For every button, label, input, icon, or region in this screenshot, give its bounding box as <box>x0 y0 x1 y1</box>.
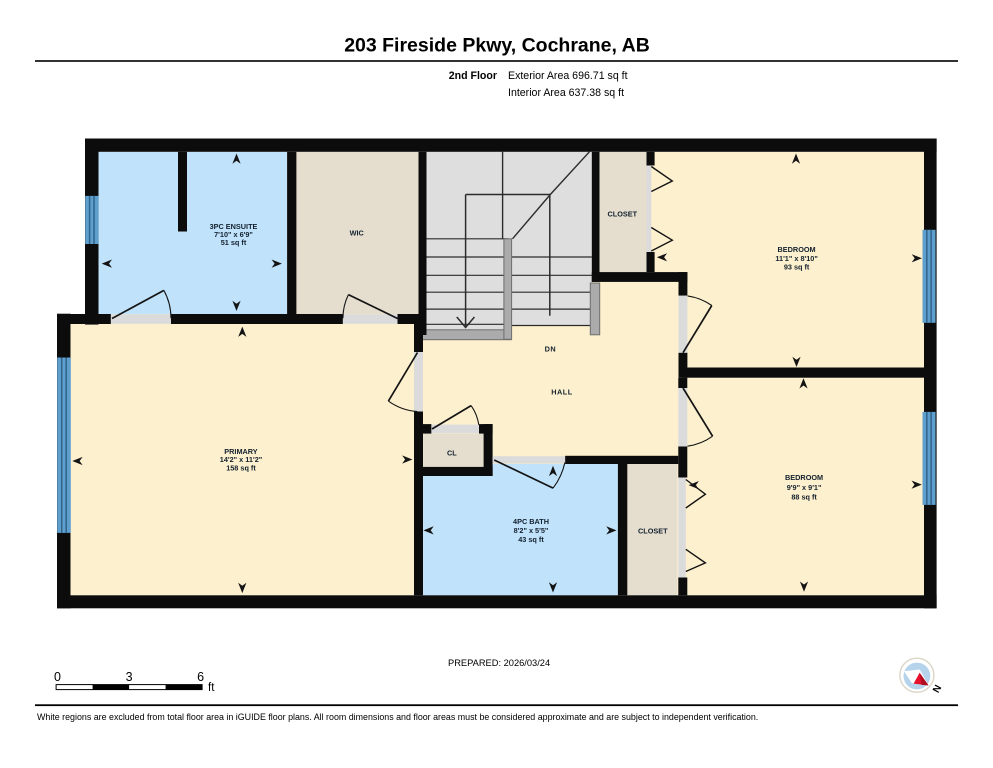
svg-text:0: 0 <box>54 670 61 684</box>
svg-text:Exterior Area 696.71 sq ft: Exterior Area 696.71 sq ft <box>508 70 628 82</box>
svg-text:2nd Floor: 2nd Floor <box>449 70 497 82</box>
svg-text:203 Fireside Pkwy, Cochrane, A: 203 Fireside Pkwy, Cochrane, AB <box>344 35 650 57</box>
svg-text:9'9" x 9'1": 9'9" x 9'1" <box>787 483 822 492</box>
svg-text:ft: ft <box>208 682 215 694</box>
svg-text:51 sq ft: 51 sq ft <box>221 238 247 247</box>
svg-text:93 sq ft: 93 sq ft <box>784 263 810 272</box>
svg-text:BEDROOM: BEDROOM <box>778 245 816 254</box>
svg-text:HALL: HALL <box>551 388 572 397</box>
svg-text:3: 3 <box>126 670 133 684</box>
svg-text:DN: DN <box>545 345 557 354</box>
svg-text:43 sq ft: 43 sq ft <box>518 535 544 544</box>
svg-text:CLOSET: CLOSET <box>638 527 668 536</box>
svg-text:CL: CL <box>447 448 457 457</box>
svg-text:158 sq ft: 158 sq ft <box>226 464 256 473</box>
svg-text:WIC: WIC <box>350 228 365 237</box>
svg-text:Interior Area 637.38 sq ft: Interior Area 637.38 sq ft <box>508 87 624 99</box>
svg-text:6: 6 <box>197 670 204 684</box>
svg-text:4PC BATH: 4PC BATH <box>513 517 549 526</box>
svg-text:CLOSET: CLOSET <box>608 209 638 218</box>
svg-text:PREPARED: 2026/03/24: PREPARED: 2026/03/24 <box>448 658 550 668</box>
svg-text:8'2" x 5'5": 8'2" x 5'5" <box>514 526 549 535</box>
svg-text:BEDROOM: BEDROOM <box>785 473 823 482</box>
svg-text:14'2" x 11'2": 14'2" x 11'2" <box>220 455 262 464</box>
svg-text:88 sq ft: 88 sq ft <box>791 492 817 501</box>
svg-text:White regions are excluded fro: White regions are excluded from total fl… <box>37 712 758 722</box>
